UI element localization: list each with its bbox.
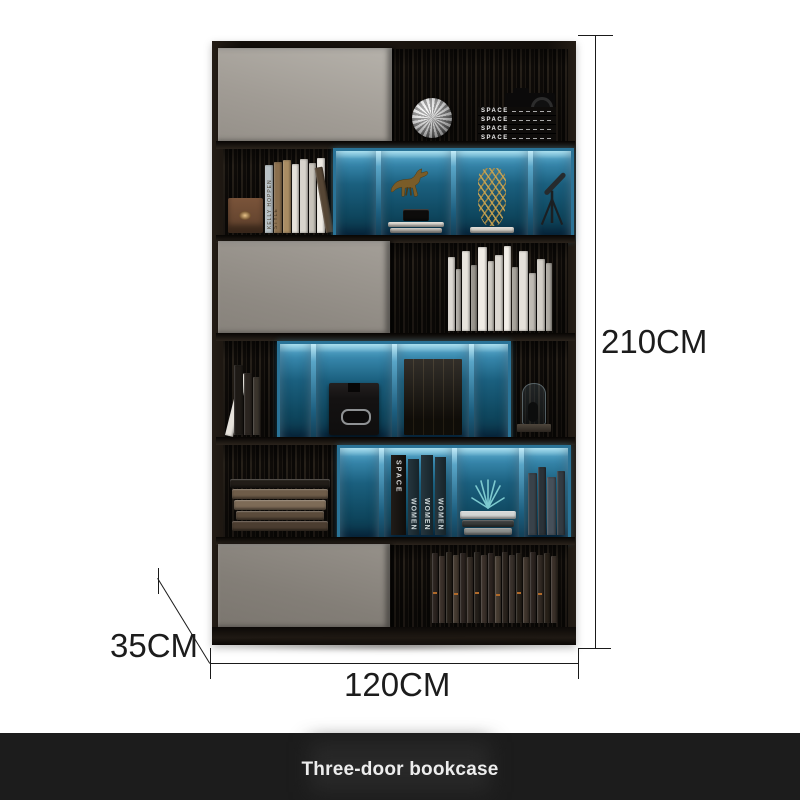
book-spine-label: SPACE [481,108,509,114]
book-spine [502,552,508,623]
book-spine [230,479,330,488]
shelf-row-4 [223,341,568,437]
book-spine [537,555,543,623]
product-image: SPACE SPACE SPACE SPACE KELLY HOPPEN STY… [0,0,800,800]
book-spine-label: WOMEN [437,498,444,531]
book-spine [456,269,461,331]
vase-group [470,168,514,233]
telescope-icon [535,167,569,233]
book-spine [390,228,442,233]
cubby-cell [456,151,528,238]
backlit-cubbies-row4 [277,341,511,443]
book-spine [236,511,324,520]
shelf-divider [216,437,575,445]
shelf-divider [216,333,575,341]
depth-dimension-tick [158,568,159,594]
book-spine: SPACE [478,107,556,116]
book-spine-label: SPACE [481,117,509,123]
cloche-base [517,424,551,432]
book-spine [495,255,503,331]
book-spine [551,556,557,623]
book-spine [471,265,477,331]
width-dimension-line [210,663,578,664]
height-dimension-top-tick [578,35,613,36]
book-spine [460,553,466,623]
horse-sculpture-icon [389,168,443,208]
backlit-cubbies-row2 [333,148,574,241]
height-dimension-bottom-tick [578,648,611,649]
white-book-cluster [448,245,560,331]
book-spine [244,373,252,435]
book-spine [537,259,545,331]
book-spine [529,273,536,331]
product-title: Three-door bookcase [0,759,800,781]
disco-ball-ornament [412,98,452,138]
cubby-cell [336,151,376,238]
book-spine [546,263,552,331]
book-spine [547,477,556,535]
book-spine: SPACE [478,125,556,134]
book-spine-label: WOMEN [410,498,417,531]
cubby-cell [381,151,451,238]
product-title-bar: Three-door bookcase [0,733,800,800]
plant-on-books-group [460,476,516,535]
book-spine [234,365,243,435]
depth-dimension-label: 35CM [110,629,198,662]
bookcase-interior: SPACE SPACE SPACE SPACE KELLY HOPPEN STY… [223,49,568,627]
book-spine [253,377,260,435]
sculpture-base [388,208,444,233]
book-spine [470,227,514,233]
book-spine [432,553,438,623]
book-spine [512,267,518,331]
sliding-door-top [218,48,392,141]
book-spine [453,555,459,623]
bookcase: SPACE SPACE SPACE SPACE KELLY HOPPEN STY… [212,41,576,645]
book-spine [448,257,455,331]
cubby-cell [280,344,311,440]
width-dimension-right-tick [578,648,579,679]
book-spine-label: SPACE [395,460,402,494]
floor-shadow [216,640,572,651]
book-spine [232,489,328,499]
height-dimension-label: 210CM [601,325,707,358]
book-spine-label: KELLY HOPPEN STYLE [267,165,279,229]
cubby-cell: SPACE WOMEN WOMEN WOMEN [384,448,452,540]
book-spine [467,557,473,623]
book-spine [488,553,494,623]
book-spine [523,557,529,623]
leather-box-ornament [228,198,263,233]
gold-lattice-vase [478,168,506,226]
cubby-cell [397,344,469,440]
book-spine [538,467,546,535]
box-handle [341,409,371,425]
book-spine: WOMEN [435,457,446,535]
book-spine-label: WOMEN [423,498,430,531]
shelf-row-6 [223,545,568,627]
stacked-books [230,445,330,531]
sliding-door-middle [218,241,390,333]
book-spine [388,222,444,227]
book-spine [481,555,487,623]
book-spine [292,164,299,233]
space-book-stack: SPACE SPACE SPACE SPACE [478,107,556,143]
backlit-cubbies-row5: SPACE WOMEN WOMEN WOMEN [337,445,571,543]
book-spine [478,247,487,331]
cubby-cell [533,151,571,238]
book-spine [509,555,515,623]
cubby-cell [474,344,508,440]
shelf-row-5: SPACE WOMEN WOMEN WOMEN [223,445,568,537]
cubby-cell [316,344,392,440]
book-spine [516,553,522,623]
book-spine [528,473,537,535]
leaning-books [225,365,260,435]
book-spine [462,251,470,331]
cubby-cell [340,448,379,540]
book-spine [439,556,445,623]
book-spine [488,261,494,331]
width-dimension-left-tick [210,648,211,679]
cubby-cell [524,448,568,540]
book-spine: WOMEN [421,455,433,535]
width-dimension-label: 120CM [344,668,444,701]
cubby-cell [457,448,519,540]
horse-sculpture-group [388,168,444,233]
book-spine [530,552,536,623]
book-row [432,545,562,623]
book-under-vase [470,226,514,233]
book-spine: WOMEN [408,459,419,535]
book-spine-label: SPACE [481,126,509,132]
book-spine [519,251,528,331]
glass-cloche-ornament [522,383,546,425]
book-spine [474,552,480,623]
book-spine [495,556,501,623]
book-spine [464,528,512,535]
crystal-plant-icon [468,476,508,510]
book-spine [446,552,452,623]
shelf-row-3 [223,243,568,333]
book-row [528,467,565,535]
storage-box [329,383,379,435]
stacked-books [460,510,516,535]
shelf-row-2: KELLY HOPPEN STYLE [223,149,568,235]
book-spine [300,159,308,233]
shelf-row-1: SPACE SPACE SPACE SPACE [223,49,568,141]
sliding-door-bottom [218,544,390,627]
book-spine [283,160,291,233]
height-dimension-line [595,35,596,648]
book-spine [234,500,326,510]
book-spine [462,520,514,527]
book-spine [544,553,550,623]
book-spine [557,471,565,535]
black-book-set [404,359,462,435]
book-spine: SPACE [478,116,556,125]
book-spine [460,511,516,519]
book-spine [504,246,511,331]
book-spine [232,521,328,531]
book-spine [403,209,429,221]
book-spine: SPACE [391,455,406,535]
